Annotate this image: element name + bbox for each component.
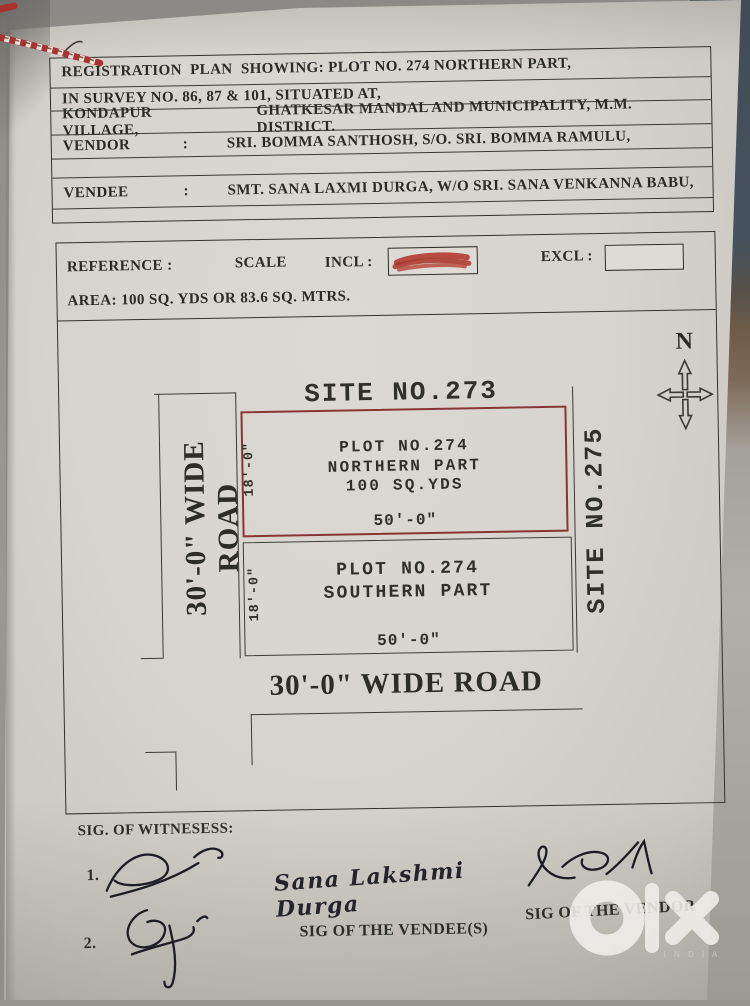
incl-red-scribble bbox=[389, 247, 477, 275]
vendor-colon: : bbox=[183, 136, 227, 154]
left-road-label: 30'-0" WIDE ROAD bbox=[177, 408, 215, 649]
header-table: REGISTRATION PLAN SHOWING: PLOT NO. 274 … bbox=[49, 46, 714, 224]
scale-label: SCALE bbox=[235, 255, 287, 273]
incl-checkbox bbox=[388, 246, 478, 276]
southern-plot-line2: SOUTHERN PART bbox=[244, 579, 571, 608]
excl-label: EXCL : bbox=[541, 248, 593, 266]
left-road-top-line bbox=[154, 392, 236, 394]
witnesses-heading: SIG. OF WITNESESS: bbox=[78, 821, 234, 841]
olx-o bbox=[580, 891, 634, 945]
reference-divider bbox=[58, 309, 716, 321]
southern-plot-width-dim: 50'-0" bbox=[245, 629, 572, 653]
southern-plot-box: PLOT NO.274 SOUTHERN PART 50'-0" bbox=[243, 537, 574, 657]
olx-india-text: I N D I A bbox=[664, 950, 721, 959]
vendee-name: SMT. SANA LAXMI DURGA, W/O SRI. SANA VEN… bbox=[227, 174, 694, 199]
northern-plot-box: PLOT NO.274 NORTHERN PART 100 SQ.YDS 50'… bbox=[240, 406, 568, 538]
southern-plot-height-dim: 18'-0" bbox=[247, 559, 274, 629]
witness2-number: 2. bbox=[84, 935, 97, 953]
bottom-road-south-edge bbox=[251, 708, 584, 765]
northern-plot-height-dim: 18'-0" bbox=[242, 434, 269, 504]
area-text: AREA: 100 SQ. YDS OR 83.6 SQ. MTRS. bbox=[67, 288, 350, 310]
plan-box: REFERENCE : SCALE INCL : EXCL : AREA: 10… bbox=[55, 231, 725, 814]
left-road-edge-line bbox=[158, 394, 164, 658]
incl-label: INCL : bbox=[325, 254, 373, 272]
reference-label: REFERENCE : bbox=[67, 257, 173, 276]
witness2-signature bbox=[113, 897, 235, 994]
document-thread bbox=[0, 0, 140, 90]
left-road-bottom-tick bbox=[141, 658, 164, 659]
northern-plot-width-dim: 50'-0" bbox=[244, 509, 566, 533]
village-label: KONDAPUR VILLAGE, bbox=[62, 103, 231, 140]
bottom-road-label: 30'-0" WIDE ROAD bbox=[246, 665, 567, 704]
site-275-label: SITE NO.275 bbox=[579, 400, 619, 641]
left-road-lower-corner bbox=[145, 752, 177, 792]
site-273-label: SITE NO.273 bbox=[231, 375, 571, 411]
vendee-label: VENDEE bbox=[63, 183, 183, 202]
vendee-signature-label: SIG OF THE VENDEE(S) bbox=[299, 920, 488, 941]
olx-x bbox=[673, 899, 711, 937]
northern-plot-line3: 100 SQ.YDS bbox=[244, 473, 566, 499]
vendee-colon: : bbox=[183, 182, 227, 200]
vendee-signature-name: Sana Lakshmi Durga bbox=[273, 855, 506, 923]
olx-watermark: I N D I A bbox=[568, 878, 743, 962]
excl-checkbox bbox=[605, 244, 684, 271]
north-letter: N bbox=[654, 328, 714, 356]
registration-plan-sheet: REGISTRATION PLAN SHOWING: PLOT NO. 274 … bbox=[0, 0, 750, 1006]
compass-icon bbox=[655, 358, 716, 431]
vendor-label: VENDOR bbox=[63, 136, 183, 155]
